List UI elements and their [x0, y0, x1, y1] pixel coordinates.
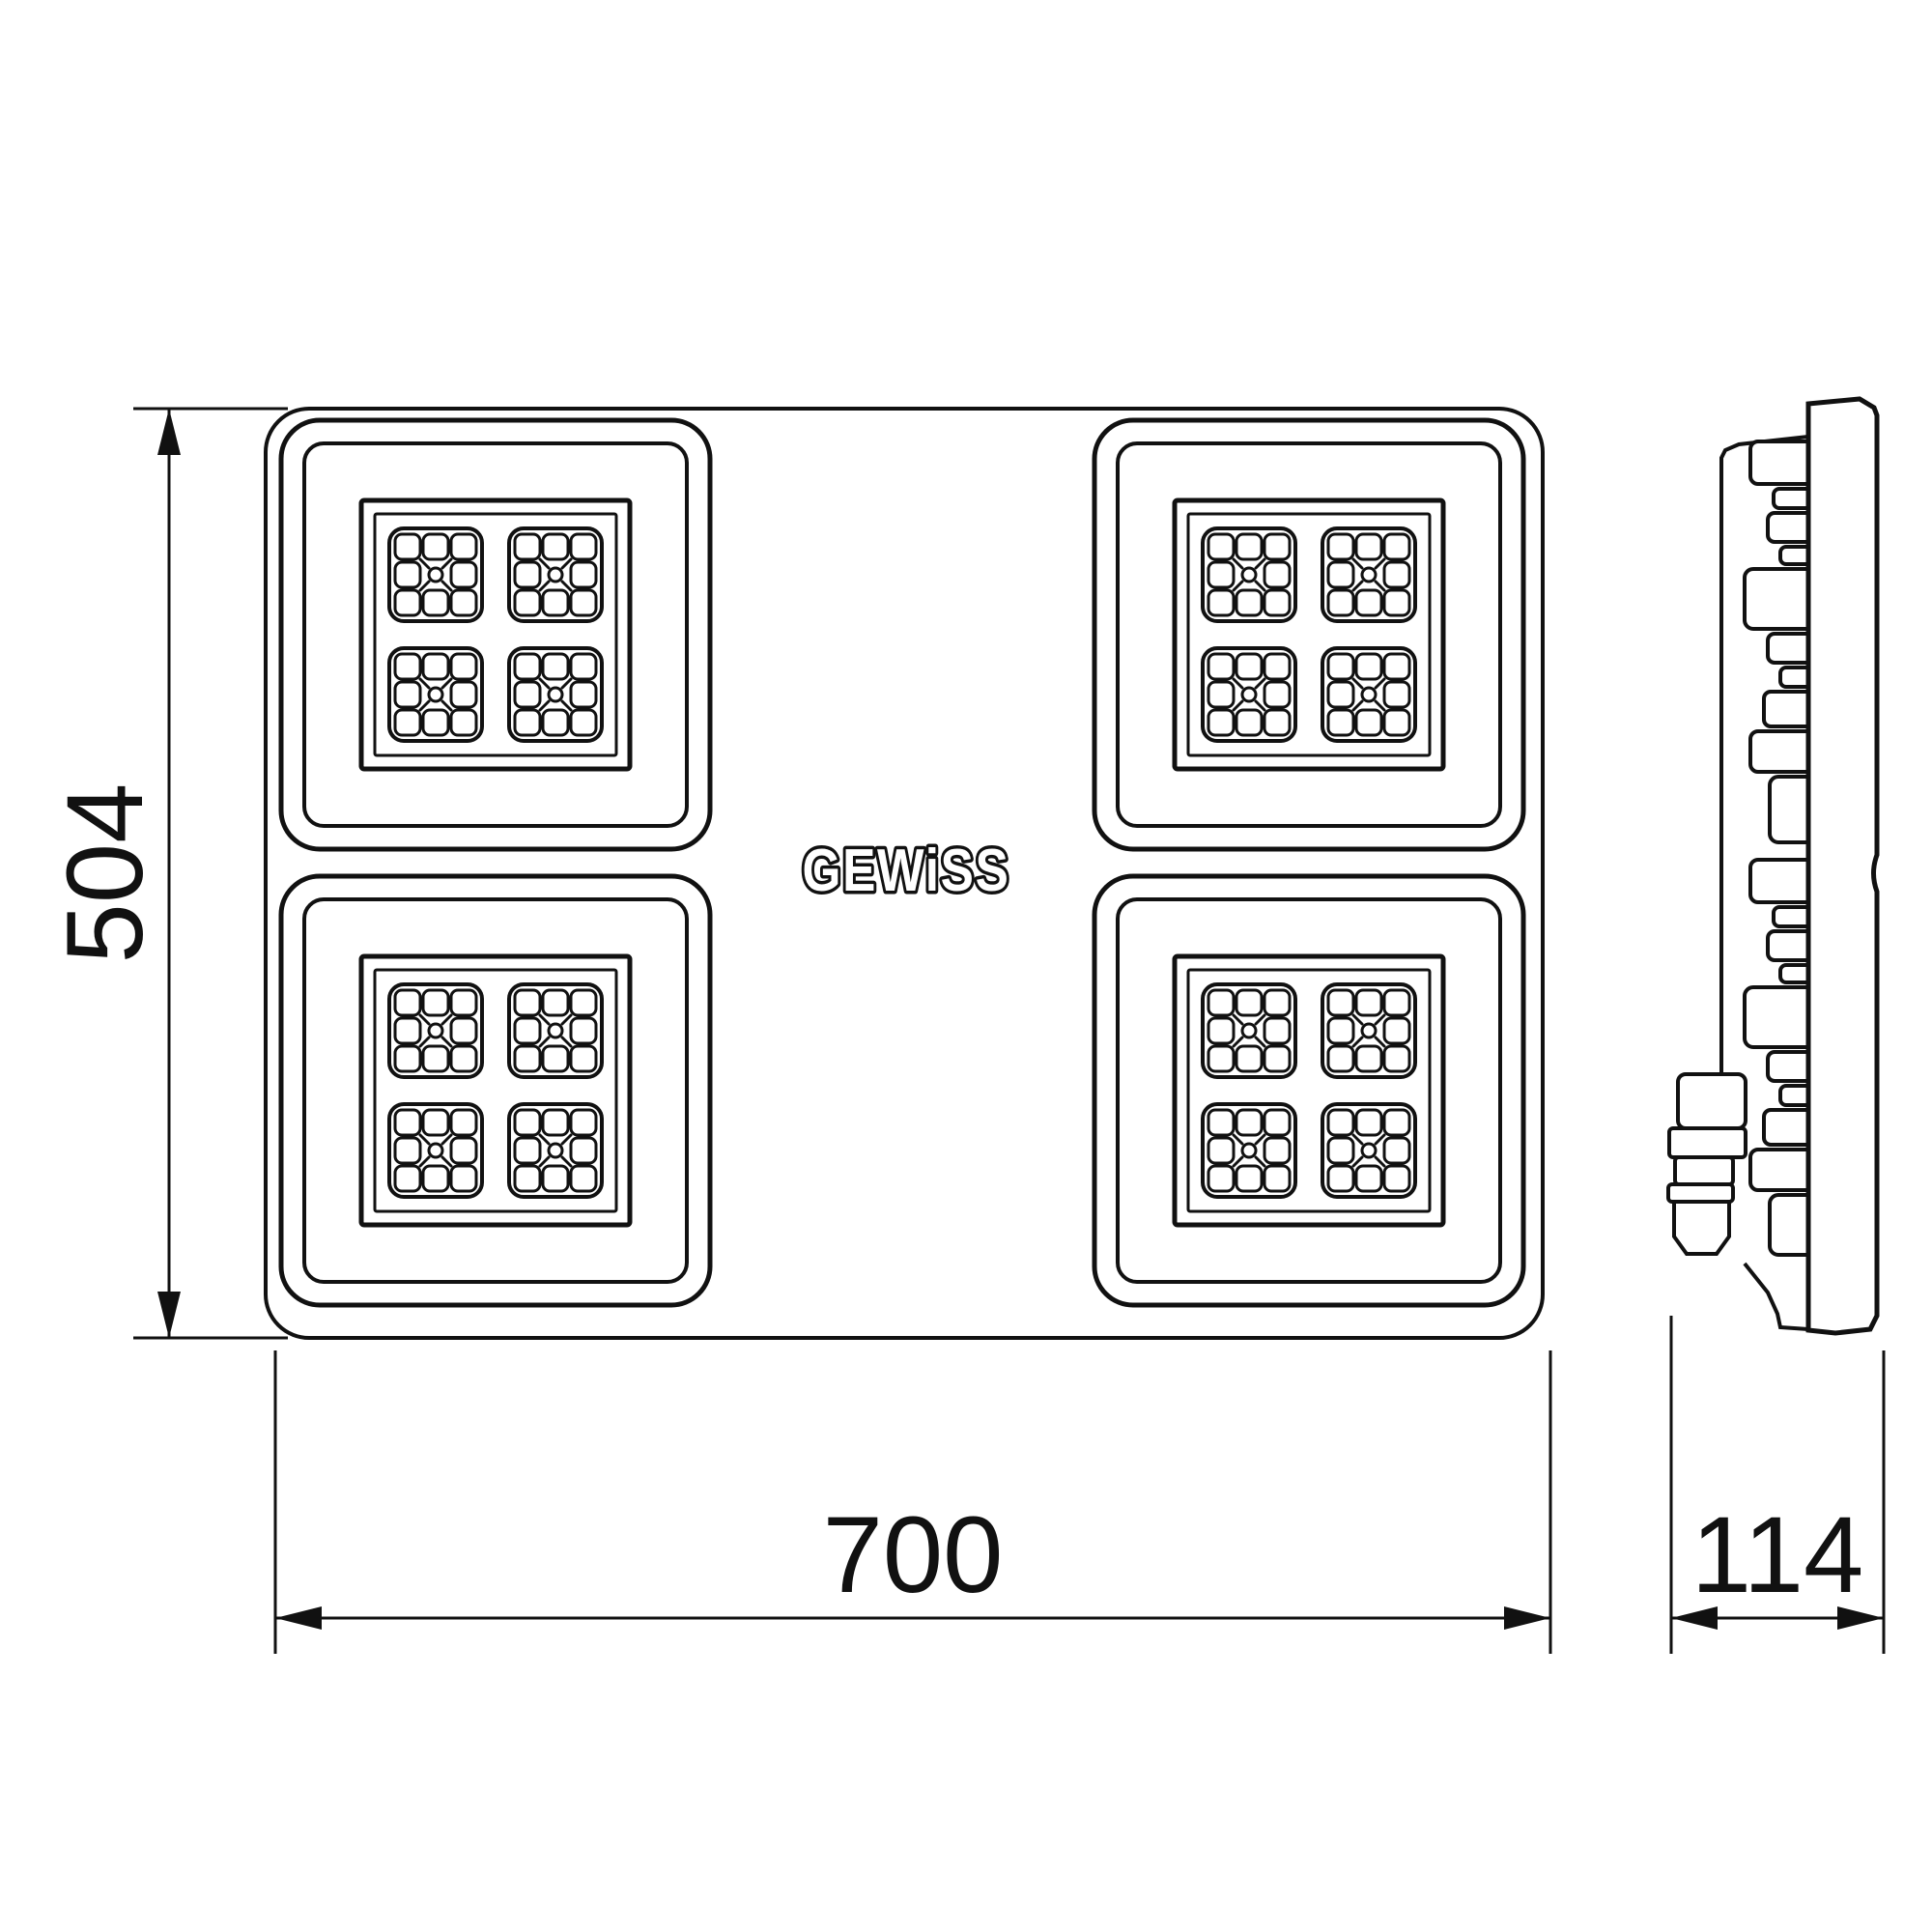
led-module-bottom-right — [1094, 876, 1523, 1305]
led-module-top-left — [281, 420, 710, 849]
floodlight-dimension-drawing: GEWiSS — [0, 0, 1932, 1932]
front-panel-profile — [1808, 399, 1877, 1333]
technical-drawing-canvas: GEWiSS — [0, 0, 1932, 1932]
arrowhead-right — [1504, 1606, 1550, 1630]
brand-logo: GEWiSS — [803, 838, 1010, 904]
led-module-bottom-left — [281, 876, 710, 1305]
front-view: GEWiSS — [266, 409, 1543, 1338]
cable-gland-cap — [1674, 1202, 1729, 1254]
dimension-label-width: 700 — [823, 1494, 1004, 1615]
cable-gland-neck — [1675, 1157, 1733, 1184]
cable-gland-ring — [1668, 1184, 1733, 1202]
cable-gland-flange — [1669, 1128, 1746, 1157]
cable-gland — [1668, 1074, 1746, 1254]
arrowhead-down — [157, 1292, 181, 1338]
arrowhead-up — [157, 409, 181, 455]
heatsink-bottom-outline — [1745, 1264, 1808, 1329]
dimension-width: 700 — [275, 1350, 1550, 1654]
led-module-top-right — [1094, 420, 1523, 849]
side-view — [1668, 399, 1877, 1333]
dimension-depth: 114 — [1671, 1316, 1884, 1654]
cable-gland-body — [1678, 1074, 1746, 1128]
dimension-height: 504 — [44, 409, 288, 1338]
arrowhead-left — [275, 1606, 322, 1630]
dimension-label-height: 504 — [44, 783, 165, 964]
dimension-label-depth: 114 — [1691, 1494, 1864, 1615]
